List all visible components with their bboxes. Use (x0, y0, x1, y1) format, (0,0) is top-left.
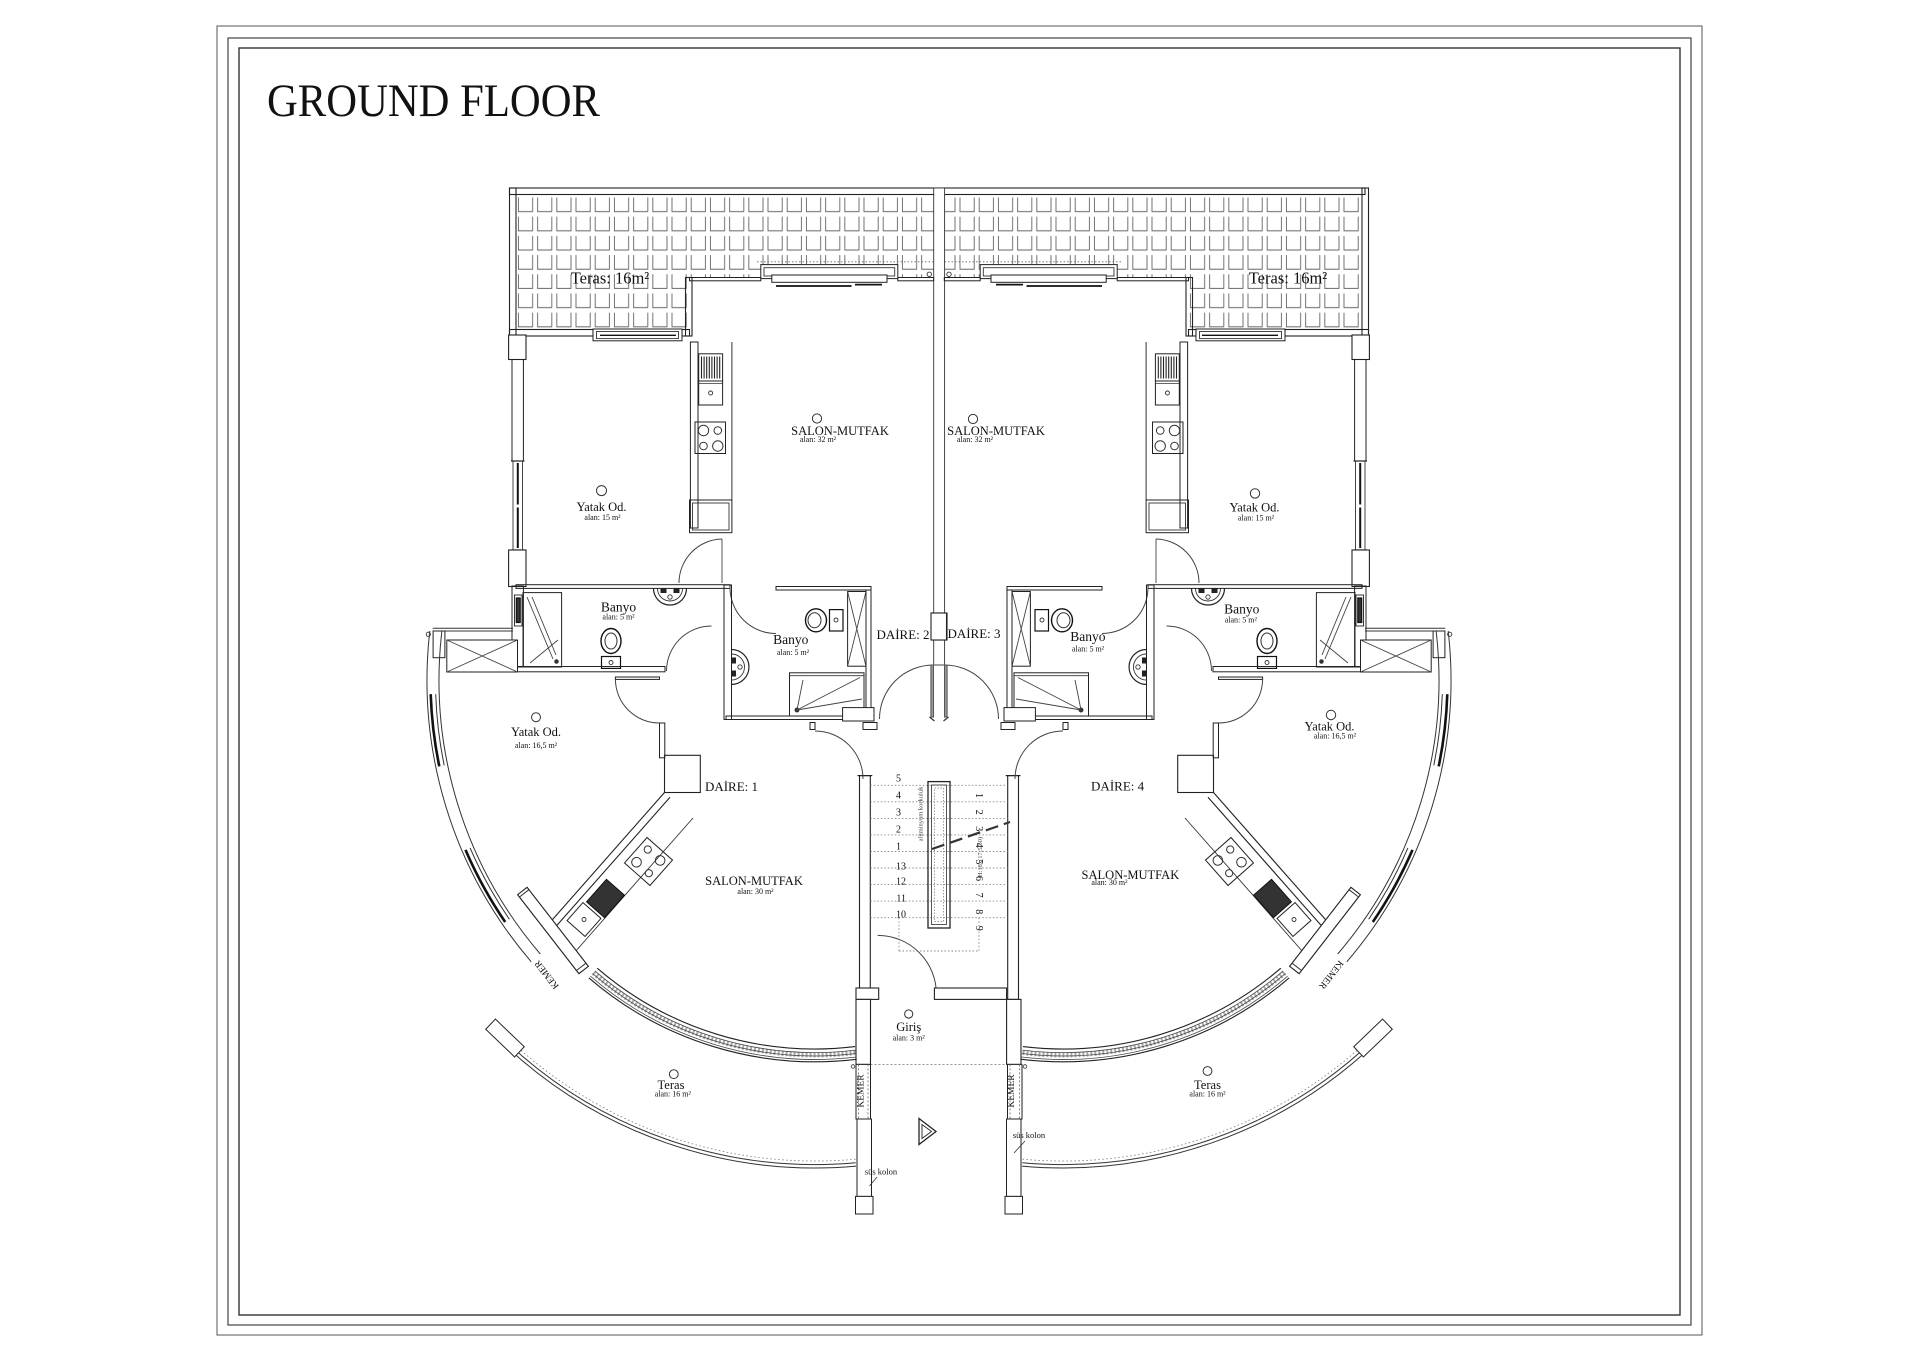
svg-text:alan: 16,5 m²: alan: 16,5 m² (515, 741, 558, 750)
svg-text:alan: 5 m²: alan: 5 m² (1225, 616, 1258, 625)
svg-text:Yatak Od.: Yatak Od. (511, 725, 561, 739)
svg-text:süs kolon: süs kolon (865, 1167, 898, 1177)
svg-text:alan: 3 m²: alan: 3 m² (893, 1034, 926, 1043)
svg-text:4: 4 (896, 791, 901, 802)
svg-text:alan: 16 m²: alan: 16 m² (1189, 1090, 1226, 1099)
svg-text:10: 10 (896, 910, 906, 921)
svg-text:3: 3 (896, 808, 901, 819)
svg-text:2: 2 (973, 810, 984, 815)
svg-text:Teras: 16m²: Teras: 16m² (571, 268, 650, 287)
svg-text:9: 9 (973, 926, 984, 931)
svg-text:alan: 32 m²: alan: 32 m² (957, 435, 994, 444)
svg-text:Yatak Od.: Yatak Od. (1229, 500, 1279, 514)
svg-text:H:18x(17,5/30): H:18x(17,5/30) (977, 837, 984, 877)
svg-text:süs kolon: süs kolon (1013, 1130, 1046, 1140)
svg-text:13: 13 (896, 862, 906, 873)
svg-text:Yatak Od.: Yatak Od. (576, 500, 626, 514)
svg-text:alan: 5 m²: alan: 5 m² (1072, 644, 1105, 653)
svg-text:3: 3 (973, 826, 984, 831)
svg-text:7: 7 (973, 893, 984, 898)
svg-text:alan: 16 m²: alan: 16 m² (655, 1090, 692, 1099)
svg-text:Banyo: Banyo (1070, 629, 1105, 644)
svg-text:alan: 15 m²: alan: 15 m² (584, 513, 621, 522)
svg-text:11: 11 (896, 894, 906, 905)
svg-text:alan: 5 m²: alan: 5 m² (777, 648, 810, 657)
svg-text:Banyo: Banyo (1224, 602, 1259, 617)
svg-text:alan: 30 m²: alan: 30 m² (1091, 878, 1128, 887)
svg-text:1: 1 (896, 842, 901, 853)
svg-text:Teras: 16m²: Teras: 16m² (1249, 268, 1328, 287)
svg-text:alan: 5 m²: alan: 5 m² (602, 613, 635, 622)
svg-text:KEMER: KEMER (1007, 1074, 1017, 1108)
svg-text:alüminyum korkuluk: alüminyum korkuluk (918, 786, 925, 841)
svg-text:DAİRE: 1: DAİRE: 1 (705, 779, 758, 794)
svg-text:1: 1 (973, 793, 984, 798)
svg-text:12: 12 (896, 877, 906, 888)
svg-text:8: 8 (973, 909, 984, 914)
svg-text:KEMER: KEMER (857, 1074, 867, 1108)
svg-text:Banyo: Banyo (773, 632, 808, 647)
svg-text:DAİRE: 3: DAİRE: 3 (947, 626, 1000, 641)
svg-text:5: 5 (896, 774, 901, 785)
svg-text:alan: 32 m²: alan: 32 m² (800, 435, 837, 444)
svg-text:2: 2 (896, 825, 901, 836)
svg-text:alan: 16,5 m²: alan: 16,5 m² (1314, 732, 1357, 741)
svg-text:alan: 30 m²: alan: 30 m² (737, 887, 774, 896)
svg-text:SALON-MUTFAK: SALON-MUTFAK (705, 874, 803, 888)
svg-text:Giriş: Giriş (896, 1020, 921, 1034)
svg-text:DAİRE: 4: DAİRE: 4 (1091, 779, 1145, 794)
svg-text:alan: 15 m²: alan: 15 m² (1238, 514, 1275, 523)
svg-text:GROUND FLOOR: GROUND FLOOR (267, 75, 601, 127)
svg-text:DAİRE: 2: DAİRE: 2 (876, 627, 929, 642)
